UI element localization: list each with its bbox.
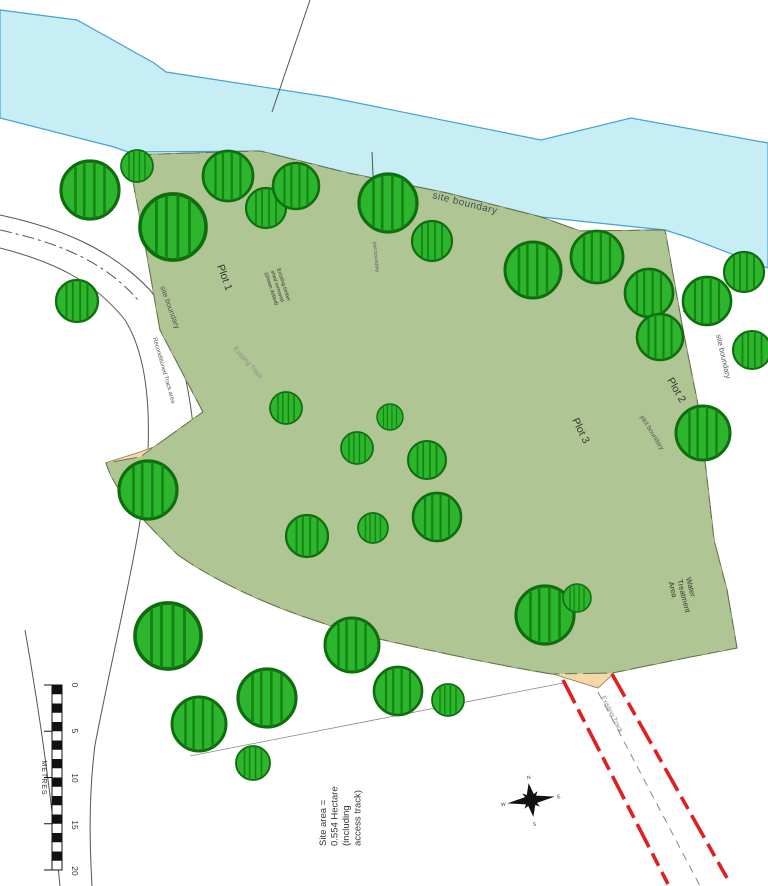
svg-text:(including: (including: [341, 805, 352, 846]
scale-tick-0: 0: [70, 683, 80, 688]
tree: [505, 242, 561, 298]
tree: [119, 461, 177, 519]
compass-e: E: [557, 794, 562, 800]
scale-tick-5: 5: [70, 729, 80, 734]
tree: [359, 174, 417, 232]
label-site-boundary-right: site boundary: [714, 333, 733, 379]
tree: [238, 669, 296, 727]
tree: [676, 406, 730, 460]
tree: [286, 515, 328, 557]
svg-text:Site area =: Site area =: [318, 799, 329, 846]
scale-tick-20: 20: [70, 866, 80, 876]
tree: [140, 194, 206, 260]
tree: [432, 684, 464, 716]
tree: [625, 269, 673, 317]
compass-s: S: [532, 821, 537, 827]
north-arrow: N E S W: [497, 771, 564, 832]
svg-text:access track): access track): [353, 790, 364, 846]
tree: [270, 392, 302, 424]
tree: [61, 161, 119, 219]
label-existing-track-lower: Existing Track: [599, 695, 624, 735]
tree: [377, 404, 403, 430]
tree: [724, 252, 764, 292]
compass-n: N: [527, 775, 532, 781]
tree: [408, 441, 446, 479]
site-plan-canvas: 0 5 10 15 20 METRES N E S W site boundar…: [0, 0, 768, 886]
tree: [135, 603, 201, 669]
tree: [236, 746, 270, 780]
tree: [56, 280, 98, 322]
tree: [637, 314, 683, 360]
tree: [273, 163, 319, 209]
tree: [413, 493, 461, 541]
tree: [341, 432, 373, 464]
tree: [571, 231, 623, 283]
label-site-area-note: Site area = 0.554 Hectare (including acc…: [318, 786, 364, 846]
tree: [412, 221, 452, 261]
scale-tick-15: 15: [70, 820, 80, 830]
svg-text:0.554 Hectare: 0.554 Hectare: [330, 786, 341, 846]
tree: [325, 618, 379, 672]
tree: [374, 667, 422, 715]
tree: [172, 697, 226, 751]
tree: [563, 584, 591, 612]
tree: [121, 150, 153, 182]
tree: [358, 513, 388, 543]
site-plan: 0 5 10 15 20 METRES N E S W site boundar…: [0, 0, 768, 886]
tree: [203, 151, 253, 201]
scale-tick-10: 10: [70, 773, 80, 783]
tree: [733, 331, 768, 369]
scale-unit: METRES: [40, 760, 47, 795]
compass-w: W: [501, 802, 507, 809]
tree: [683, 277, 731, 325]
scale-bar: 0 5 10 15 20 METRES: [40, 683, 80, 876]
